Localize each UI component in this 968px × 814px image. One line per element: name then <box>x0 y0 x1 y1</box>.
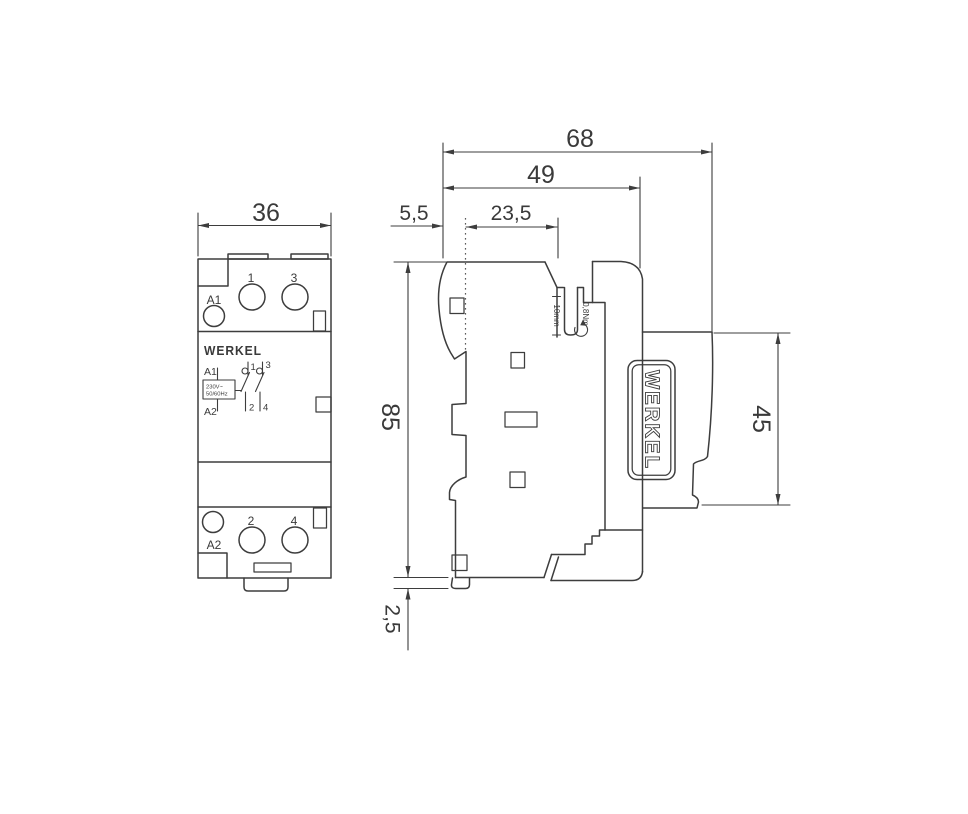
front-top-tab-left <box>228 254 268 259</box>
side-wire-slot <box>578 288 593 303</box>
dim-total-depth-value: 68 <box>566 125 594 153</box>
terminal-screw-2 <box>239 527 265 553</box>
side-hole-bottom-left <box>452 555 467 571</box>
dim-height-value: 85 <box>376 403 404 431</box>
dimension-top-flat-23-5: 23,5 <box>466 202 558 258</box>
dim-top-flat-value: 23,5 <box>491 202 532 225</box>
front-top-tab-right <box>291 254 328 259</box>
side-bottom-steps <box>552 530 643 555</box>
dimension-rail-clip-2-5: 2,5 <box>381 589 449 651</box>
side-top-slope <box>545 262 564 288</box>
side-bottom-rear <box>551 572 643 581</box>
dim-din-window-value: 45 <box>747 405 775 433</box>
front-slots <box>254 311 331 572</box>
side-screw-channel <box>565 288 578 336</box>
schematic-a1-label: A1 <box>204 366 217 378</box>
terminal-3-label: 3 <box>291 271 298 285</box>
voltage-rating: 230V~ <box>206 385 224 391</box>
coil-screw-a1 <box>204 306 225 327</box>
strip-length-label: 10mm <box>552 304 561 327</box>
contactor-dimension-drawing: 1 3 A1 2 4 A2 WERKEL A1 A2 230V~ 50/60Hz <box>0 0 968 814</box>
brand-logo-side: WERKEL <box>641 370 663 470</box>
front-slot-mid-right <box>316 397 331 412</box>
side-rear-top <box>593 262 643 573</box>
side-view: 10mm 0,8Nm WERKEL 68 49 <box>376 125 790 650</box>
front-top-left-step <box>198 259 228 286</box>
dimension-body-depth-49: 49 <box>443 161 640 268</box>
side-holes <box>450 298 537 571</box>
dim-width-value: 36 <box>252 199 280 227</box>
terminal-screw-1 <box>239 284 265 310</box>
schematic-a2-label: A2 <box>204 406 217 418</box>
side-body-outline <box>439 262 713 589</box>
dim-rail-clip-value: 2,5 <box>381 604 404 633</box>
brand-badge-side: WERKEL <box>628 361 675 480</box>
terminal-2-label: 2 <box>248 514 255 528</box>
side-slot-middle <box>505 412 537 427</box>
terminal-screw-4 <box>282 527 308 553</box>
side-front-profile <box>439 262 545 578</box>
dim-front-lip-value: 5,5 <box>399 202 428 225</box>
front-slot-top-right <box>314 311 326 331</box>
brand-logo-front: WERKEL <box>204 343 262 358</box>
dim-body-depth-value: 49 <box>527 161 555 189</box>
side-bottom-chamfer <box>544 555 559 581</box>
dimension-width-36: 36 <box>198 199 331 256</box>
terminal-screw-3 <box>282 284 308 310</box>
side-hole-upper <box>511 353 525 369</box>
terminal-1-label: 1 <box>248 271 255 285</box>
front-bottom-tab <box>244 578 288 591</box>
coil-screw-a2 <box>203 512 224 533</box>
front-slot-bottom-right <box>314 508 327 528</box>
dimension-height-85: 85 <box>376 262 448 578</box>
front-terminal-screws <box>203 284 309 553</box>
dimension-din-window-45: 45 <box>702 333 790 505</box>
side-hole-top-left <box>450 298 464 314</box>
frequency-rating: 50/60Hz <box>206 392 228 398</box>
terminal-4-label: 4 <box>291 514 298 528</box>
side-inner-wall <box>593 262 606 531</box>
technical-drawing-page: 1 3 A1 2 4 A2 WERKEL A1 A2 230V~ 50/60Hz <box>0 0 968 814</box>
front-bottom-left-step <box>198 553 227 578</box>
side-hole-lower <box>510 472 525 488</box>
wiring-schematic: A1 A2 230V~ 50/60Hz 1 3 2 <box>203 360 271 418</box>
dimension-front-lip-5-5: 5,5 <box>391 202 443 229</box>
coil-a2-label: A2 <box>207 538 222 552</box>
side-bottom-foot <box>451 578 469 589</box>
coil-a1-label: A1 <box>207 293 222 307</box>
schematic-2-label: 2 <box>249 403 254 414</box>
schematic-1-label: 1 <box>251 362 256 373</box>
front-slot-bottom-center <box>254 563 291 572</box>
schematic-4-label: 4 <box>263 403 268 414</box>
schematic-3-label: 3 <box>266 360 271 371</box>
front-view: 1 3 A1 2 4 A2 WERKEL A1 A2 230V~ 50/60Hz <box>198 199 331 591</box>
